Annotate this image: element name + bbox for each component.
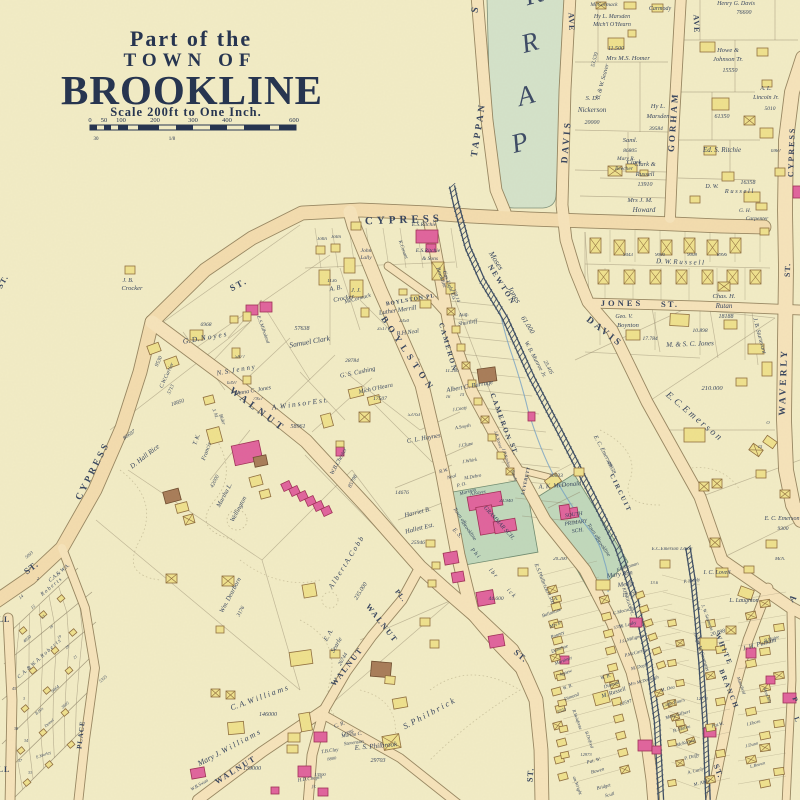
svg-text:Scale 200ft to One Inch.: Scale 200ft to One Inch.: [110, 105, 261, 119]
svg-text:400: 400: [222, 117, 232, 124]
svg-text:300: 300: [188, 117, 198, 124]
svg-text:0: 0: [88, 117, 91, 124]
svg-text:100: 100: [116, 117, 126, 124]
svg-text:30: 30: [94, 137, 100, 142]
svg-text:Part of the: Part of the: [130, 26, 252, 51]
svg-text:200: 200: [150, 117, 160, 124]
svg-text:1/8: 1/8: [169, 137, 176, 142]
svg-text:50: 50: [101, 117, 108, 124]
svg-text:600: 600: [289, 117, 299, 124]
